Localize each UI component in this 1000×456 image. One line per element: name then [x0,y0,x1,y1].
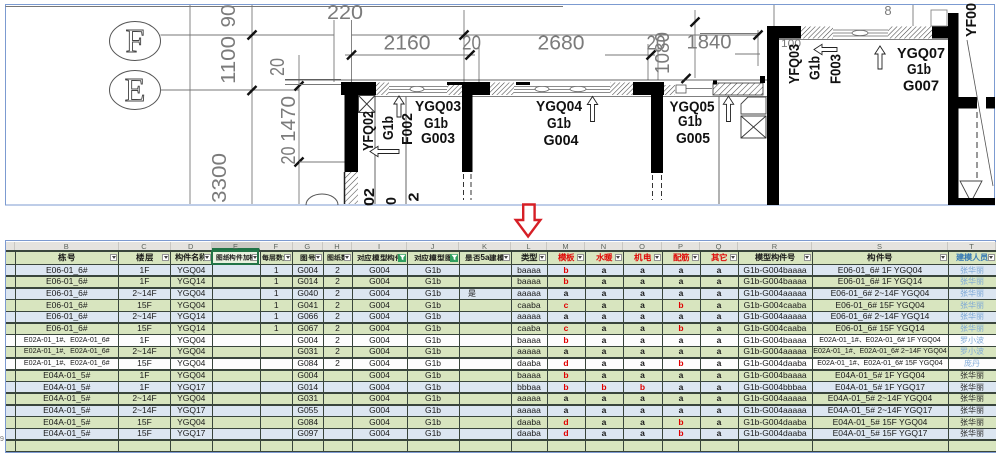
svg-text:G1b: G1b [808,56,824,80]
svg-text:20: 20 [462,33,481,55]
svg-text:YGQ07: YGQ07 [897,45,945,62]
svg-text:G007: G007 [903,78,939,95]
svg-text:2: 2 [407,193,423,202]
svg-text:G004: G004 [544,132,580,149]
svg-text:90: 90 [218,5,240,28]
svg-text:3300: 3300 [209,153,231,203]
svg-text:2680: 2680 [538,33,585,55]
svg-text:20: 20 [278,147,300,165]
svg-text:E: E [125,72,146,109]
svg-text:20: 20 [267,58,289,76]
svg-text:1840: 1840 [687,32,732,54]
svg-text:0: 0 [384,197,400,205]
svg-text:G1b: G1b [547,115,571,132]
svg-text:F003: F003 [829,54,845,84]
svg-text:YGQ03: YGQ03 [415,98,461,115]
svg-text:YGQ04: YGQ04 [536,98,582,115]
svg-text:G1b: G1b [678,113,702,130]
svg-text:220: 220 [327,2,363,24]
svg-text:YFQ03: YFQ03 [787,44,803,84]
svg-text:F: F [126,23,145,60]
svg-text:1470: 1470 [278,96,300,142]
svg-text:G1b: G1b [907,61,931,78]
svg-text:G1b: G1b [381,116,397,140]
svg-text:02: 02 [362,188,378,206]
svg-text:1080: 1080 [652,32,674,74]
svg-text:YFQ02: YFQ02 [361,111,377,151]
svg-text:2160: 2160 [384,33,431,55]
svg-text:F002: F002 [400,113,416,145]
svg-text:8: 8 [884,3,891,18]
svg-text:YF00: YF00 [964,3,980,37]
svg-text:G005: G005 [676,130,711,147]
svg-text:G003: G003 [421,130,455,147]
svg-text:1100: 1100 [218,36,240,84]
